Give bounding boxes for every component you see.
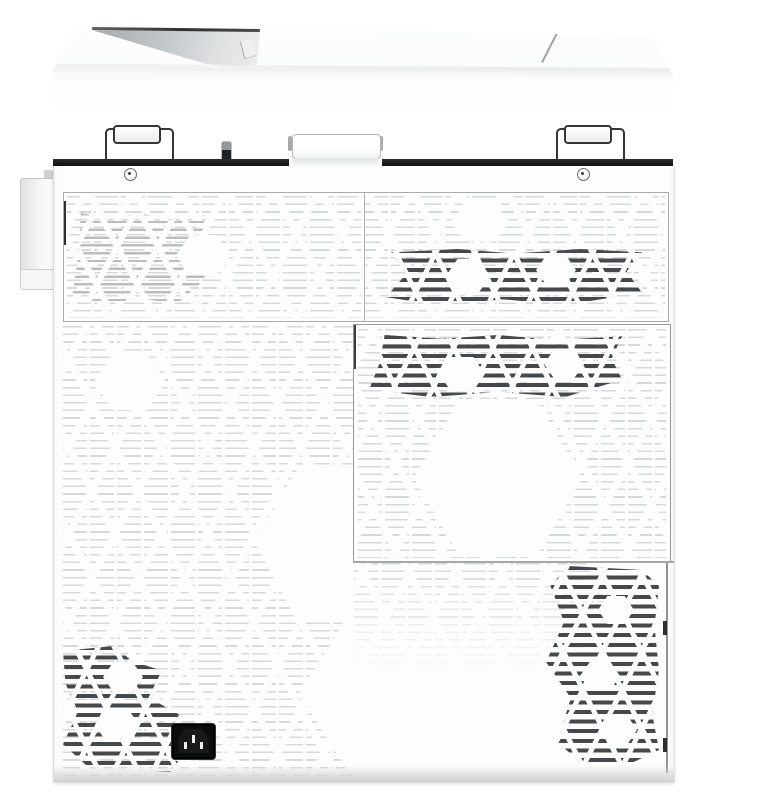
power-inlet-pin [200,742,203,749]
lid-gap-shadow-right [382,159,673,166]
base-shadow [54,765,674,781]
side-connector [20,178,57,271]
latch-slot [222,142,231,160]
upper-vent-panel [63,192,669,322]
vent-void [439,357,485,391]
screw-right [577,168,590,181]
top-cover [53,22,673,166]
hinge-left-knuckle [113,125,161,144]
middle-vent-door [353,324,671,563]
panel-corner-accent [354,325,356,369]
vent-void [598,596,634,624]
vent-void [103,662,143,692]
lid-seam-line [541,29,560,63]
printer-rear-photo [0,0,763,792]
lift-handle [292,134,381,159]
panel-corner-accent [64,201,66,245]
vent-void [580,661,620,691]
vent-void [95,708,139,742]
screw-left [124,168,137,181]
vent-cluster-dark-bottom-right [546,566,659,766]
panel-hinge-mark [663,738,667,752]
hinge-right-knuckle [564,125,612,144]
output-tray-notch [92,28,260,66]
printer-body [53,166,675,782]
vent-void [544,349,584,379]
side-connector-lower [20,269,57,290]
vent-void [601,716,637,744]
power-inlet-pin [184,742,187,749]
vent-void [446,259,490,293]
lid-gap-shadow-left [53,159,289,166]
top-cover-fold-shade [53,64,673,78]
power-inlet [172,724,215,759]
vent-cluster-dark [364,335,622,397]
power-inlet-pin [192,735,195,743]
vent-void [536,255,576,285]
upper-panel-divider [364,193,365,321]
vent-cluster-dark [386,249,642,305]
panel-hinge-mark [663,621,667,635]
